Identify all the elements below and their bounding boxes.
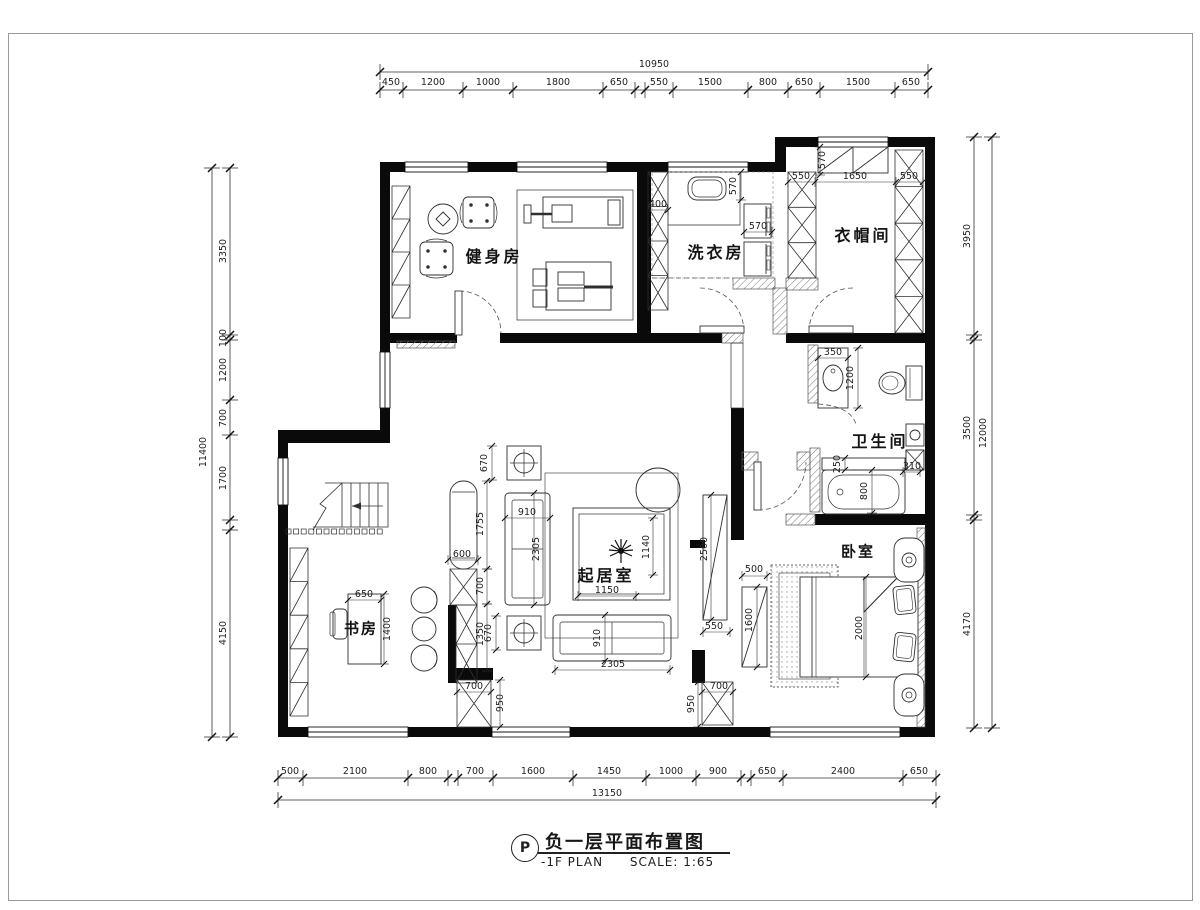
plan-scale: SCALE: 1:65	[630, 855, 714, 869]
svg-text:4170: 4170	[962, 612, 973, 636]
svg-text:550: 550	[650, 77, 668, 88]
svg-text:3950: 3950	[962, 224, 973, 248]
gym-door-arc	[459, 291, 501, 333]
svg-text:950: 950	[495, 694, 506, 712]
svg-text:550: 550	[792, 171, 810, 182]
svg-text:1650: 1650	[843, 171, 867, 182]
svg-text:500: 500	[745, 564, 763, 575]
svg-text:10950: 10950	[639, 59, 669, 70]
bedroom-furniture	[771, 538, 924, 716]
svg-text:650: 650	[355, 589, 373, 600]
svg-text:400: 400	[649, 199, 667, 210]
svg-text:700: 700	[218, 409, 229, 427]
svg-text:900: 900	[709, 766, 727, 777]
title-underline	[538, 852, 730, 854]
svg-text:450: 450	[382, 77, 400, 88]
svg-text:3500: 3500	[962, 416, 973, 440]
svg-text:2500: 2500	[699, 537, 710, 561]
gym-furniture	[420, 190, 633, 320]
floor-plan-drawing: 1095045012001000180065055015008006501500…	[0, 0, 1200, 910]
room-label-bathroom: 卫生间	[851, 428, 908, 452]
svg-text:250: 250	[832, 455, 843, 473]
room-label-bedroom: 卧室	[841, 541, 875, 562]
svg-text:1350: 1350	[475, 622, 486, 646]
svg-text:800: 800	[759, 77, 777, 88]
svg-text:1600: 1600	[521, 766, 545, 777]
svg-text:700: 700	[710, 681, 728, 692]
svg-text:2100: 2100	[343, 766, 367, 777]
svg-text:570: 570	[817, 151, 828, 169]
svg-text:11400: 11400	[198, 437, 209, 467]
plan-name: -1F PLAN	[541, 855, 603, 869]
svg-text:1450: 1450	[597, 766, 621, 777]
svg-text:1500: 1500	[698, 77, 722, 88]
svg-text:950: 950	[686, 695, 697, 713]
svg-text:1600: 1600	[744, 608, 755, 632]
svg-text:4150: 4150	[218, 621, 229, 645]
svg-text:1000: 1000	[476, 77, 500, 88]
svg-text:600: 600	[453, 549, 471, 560]
title-block: P 负一层平面布置图 -1F PLAN SCALE: 1:65	[505, 826, 765, 876]
svg-text:550: 550	[900, 171, 918, 182]
svg-text:350: 350	[824, 347, 842, 358]
svg-text:700: 700	[466, 766, 484, 777]
svg-text:1000: 1000	[659, 766, 683, 777]
svg-text:1755: 1755	[475, 512, 486, 536]
svg-text:910: 910	[592, 629, 603, 647]
svg-text:570: 570	[749, 221, 767, 232]
svg-text:910: 910	[518, 507, 536, 518]
svg-text:1400: 1400	[382, 617, 393, 641]
living-room-furniture	[450, 343, 767, 667]
svg-text:1140: 1140	[641, 535, 652, 559]
svg-text:550: 550	[705, 621, 723, 632]
svg-text:1150: 1150	[595, 585, 619, 596]
svg-text:570: 570	[728, 177, 739, 195]
svg-text:650: 650	[910, 766, 928, 777]
cloakroom-furniture	[818, 147, 888, 173]
svg-text:500: 500	[281, 766, 299, 777]
svg-text:1200: 1200	[845, 366, 856, 390]
stairs	[313, 483, 388, 530]
room-label-living-room: 起居室	[577, 562, 634, 586]
svg-text:650: 650	[610, 77, 628, 88]
svg-text:650: 650	[758, 766, 776, 777]
plan-title: 负一层平面布置图	[545, 828, 705, 854]
svg-text:310: 310	[903, 461, 921, 472]
doors-layer	[455, 278, 856, 510]
room-label-gym: 健身房	[465, 243, 522, 267]
cloakroom-door-arc	[809, 288, 853, 332]
svg-text:2305: 2305	[601, 659, 625, 670]
room-label-cloakroom: 衣帽间	[834, 222, 891, 246]
bathroom-door-arc	[818, 404, 856, 424]
svg-text:13150: 13150	[592, 788, 622, 799]
svg-text:1200: 1200	[421, 77, 445, 88]
room-label-study: 书房	[344, 618, 378, 639]
plan-symbol: P	[511, 834, 539, 862]
svg-text:650: 650	[795, 77, 813, 88]
svg-text:1500: 1500	[846, 77, 870, 88]
svg-text:2305: 2305	[531, 537, 542, 561]
svg-text:700: 700	[475, 577, 486, 595]
svg-text:3350: 3350	[218, 239, 229, 263]
svg-text:650: 650	[902, 77, 920, 88]
svg-text:700: 700	[465, 681, 483, 692]
svg-text:2000: 2000	[854, 616, 865, 640]
svg-text:800: 800	[859, 482, 870, 500]
svg-text:12000: 12000	[978, 418, 989, 448]
svg-text:2400: 2400	[831, 766, 855, 777]
hall-door-left-arc	[700, 288, 744, 332]
svg-text:800: 800	[419, 766, 437, 777]
svg-text:1800: 1800	[546, 77, 570, 88]
svg-text:670: 670	[479, 454, 490, 472]
room-label-laundry: 洗衣房	[687, 239, 744, 263]
plant-icon	[609, 539, 633, 563]
svg-text:1700: 1700	[218, 466, 229, 490]
svg-text:1200: 1200	[218, 358, 229, 382]
floor-plan-sheet: 1095045012001000180065055015008006501500…	[0, 0, 1200, 910]
svg-text:100: 100	[218, 329, 229, 347]
